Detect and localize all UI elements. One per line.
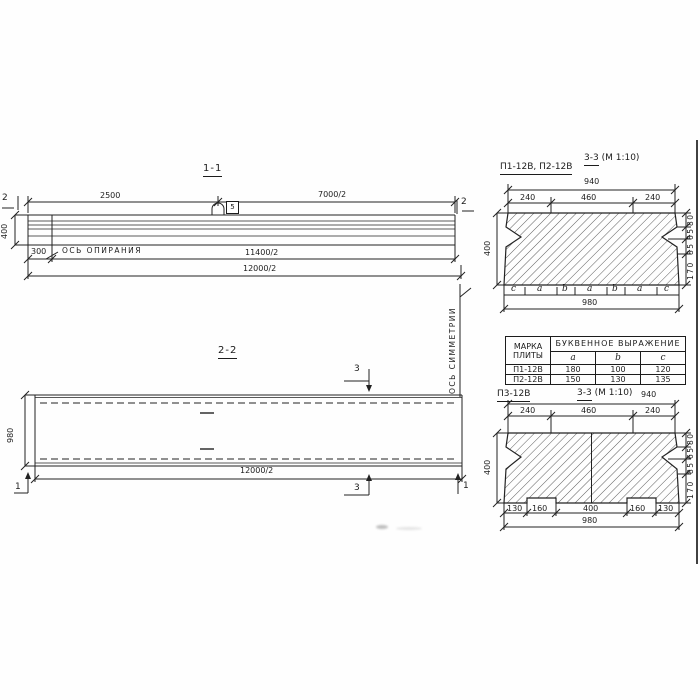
dim-height-400: 400 (1, 224, 9, 239)
dim-400-left: 400 (484, 460, 492, 475)
cut-mark-3-bottom: 3 (354, 484, 360, 493)
dim-11400-2: 11400/2 (245, 249, 278, 257)
cell-b: 100 (596, 365, 641, 375)
title-scale: (М 1:10) (595, 388, 633, 398)
dim-240-right: 240 (645, 407, 660, 415)
section-3-3-top-title: 3-3 (М 1:10) (584, 154, 639, 163)
dim-right-65: 65 (687, 227, 695, 240)
letter-b: b (562, 285, 568, 294)
cell-a: 150 (551, 375, 596, 385)
symmetry-axis-label: ОСЬ СИММЕТРИИ (449, 307, 457, 394)
dim-130-1: 130 (507, 505, 522, 513)
dim-940: 940 (584, 178, 599, 186)
dim-right-80: 80 (687, 432, 695, 445)
support-axis-label: ОСЬ ОПИРАНИЯ (62, 247, 142, 255)
section-2-2-view (14, 284, 471, 495)
dim-400-left: 400 (484, 241, 492, 256)
dim-400-bottom: 400 (583, 505, 598, 513)
cell-mark: П1-12В (506, 365, 551, 375)
dim-240-left: 240 (520, 194, 535, 202)
table-col-c: c (641, 351, 686, 364)
dim-160-2: 160 (630, 505, 645, 513)
section-3-3-bottom-title: 3-3 (М 1:10) (577, 389, 632, 398)
letter-a: a (587, 285, 592, 294)
dim-right-65: 65 (687, 446, 695, 459)
plate-cross-section-hatched (504, 213, 679, 285)
table-col-a: a (551, 351, 596, 364)
cell-a: 180 (551, 365, 596, 375)
table-header-mark: МАРКА ПЛИТЫ (506, 337, 551, 365)
cut-mark-1-right: 1 (463, 482, 469, 491)
dim-240-right: 240 (645, 194, 660, 202)
dim-300: 300 (31, 248, 46, 256)
print-artifact (396, 527, 422, 530)
dim-160-1: 160 (532, 505, 547, 513)
dim-12000-2-plan: 12000/2 (240, 467, 273, 475)
letter-c: c (664, 285, 669, 294)
plates-label-p1-p2: П1-12В, П2-12В (500, 163, 572, 175)
dim-980: 980 (582, 299, 597, 307)
plate-spec-table: МАРКА ПЛИТЫ БУКВЕННОЕ ВЫРАЖЕНИЕ a b c П1… (505, 336, 686, 385)
dim-940: 940 (641, 391, 656, 399)
loop-detail-callout: 5 (226, 201, 239, 214)
letter-b: b (612, 285, 618, 294)
cut-mark-1-left: 1 (15, 483, 21, 492)
dim-980-plan: 980 (7, 428, 15, 443)
dim-240-left: 240 (520, 407, 535, 415)
dim-2500: 2500 (100, 192, 120, 200)
cut-mark-2-left: 2 (2, 194, 8, 203)
table-header-expression: БУКВЕННОЕ ВЫРАЖЕНИЕ (551, 337, 686, 352)
plates-label-p3: П3-12В (497, 390, 530, 402)
cut-mark-2-right: 2 (461, 198, 467, 207)
blueprint-sheet: 1-1 2500 7000/2 2 2 400 300 ОСЬ ОПИРАНИЯ… (0, 0, 700, 700)
title-number: 3-3 (577, 388, 592, 401)
dim-130-2: 130 (658, 505, 673, 513)
dim-460: 460 (581, 194, 596, 202)
letter-c: c (511, 285, 516, 294)
dim-right-170: 170 (687, 480, 695, 499)
cell-mark: П2-12В (506, 375, 551, 385)
cut-mark-3-top: 3 (354, 365, 360, 374)
dim-7000-2: 7000/2 (318, 191, 346, 199)
dim-980: 980 (582, 517, 597, 525)
cell-b: 130 (596, 375, 641, 385)
dim-right-80: 80 (687, 213, 695, 226)
table-row: П1-12В 180 100 120 (506, 365, 686, 375)
dim-460: 460 (581, 407, 596, 415)
table-row: П2-12В 150 130 135 (506, 375, 686, 385)
dim-right-170: 170 (687, 261, 695, 280)
letter-a: a (637, 285, 642, 294)
cell-c: 120 (641, 365, 686, 375)
cell-c: 135 (641, 375, 686, 385)
print-artifact (376, 525, 388, 529)
dim-12000-2-top: 12000/2 (243, 265, 276, 273)
dim-right-85: 85 (687, 461, 695, 474)
title-scale: (М 1:10) (602, 153, 640, 163)
letter-a: a (537, 285, 542, 294)
section-1-1-title: 1-1 (203, 164, 222, 177)
dim-right-85: 85 (687, 242, 695, 255)
title-number: 3-3 (584, 153, 599, 166)
table-col-b: b (596, 351, 641, 364)
section-2-2-title: 2-2 (218, 346, 237, 359)
